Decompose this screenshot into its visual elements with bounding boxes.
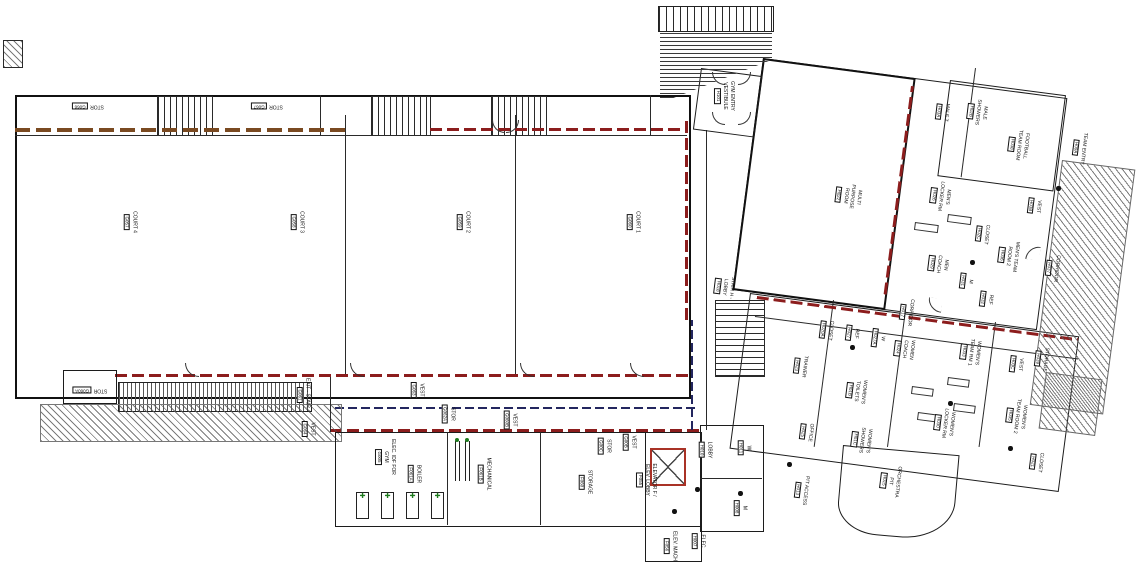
room-label-vest-g060b: VESTG060B	[503, 410, 516, 429]
room-number-stor-g062a: G062A	[441, 404, 448, 423]
room-label-office: OFFICEH025	[798, 422, 814, 442]
room-number-stor-g00c: G00C	[597, 438, 604, 455]
room-label-womens-toilets: WOMEN'STOILETSH01B	[845, 378, 868, 404]
room-label-boiler: BOILERF061A	[407, 465, 420, 483]
room-label-pit-access: PIT ACCESSH013	[793, 475, 810, 506]
room-number-boiler: F061A	[407, 465, 414, 483]
room-number-court2: G059	[456, 214, 463, 230]
room-number-toilet-m2: H031	[958, 272, 967, 288]
room-number-stor-sw: G060A	[73, 387, 92, 394]
room-label-toilet-m2: MH031	[958, 272, 973, 289]
room-label-court2: COURT 2G059	[456, 211, 469, 233]
room-label-male-t: MALE TH03A	[934, 102, 950, 121]
room-number-court3: G058	[290, 214, 297, 230]
room-label-elev-mach: ELEV. MACHF056	[663, 531, 676, 561]
room-label-elec-idf-gym: ELEC. IDF FORGYMG005	[375, 439, 395, 475]
room-label-mens-locker-rm: MEN'SLOCKER RMH026	[928, 180, 951, 212]
room-labels-layer: COURT 4G057COURT 3G058COURT 2G059COURT 1…	[0, 0, 1137, 577]
room-label-mechanical: MECHANICALF061B	[477, 458, 490, 491]
room-number-vest-g063: G063	[410, 382, 417, 398]
room-label-vest-h03c: VESTH03C	[1008, 355, 1023, 373]
room-label-court4: COURT 4G057	[123, 211, 136, 233]
room-number-vest-g064: G064	[301, 421, 308, 437]
room-number-toilet-w1: H011	[737, 440, 744, 455]
room-number-gym-entry-vestibule: H101	[714, 88, 721, 104]
room-label-womens-team-room-2: WOMEN'STEAM ROOM 2H035	[1004, 397, 1028, 434]
room-label-football-team-room: FOOTBALLTEAM ROOMH038	[1006, 128, 1030, 161]
room-label-toilet-m1: MH008	[733, 500, 746, 516]
room-label-womens-locker-rm: WOMEN'SLOCKER RMH030	[932, 407, 955, 439]
room-label-closet-h02c: CLOSETH02C	[974, 223, 990, 245]
room-number-vest-g060b: G060B	[503, 410, 510, 429]
room-label-corridor-east: CORRIDORH037	[1044, 254, 1061, 283]
room-label-vest-g00b: VESTG00B	[622, 434, 635, 451]
room-label-male-showers: MALESHOWERSH02B	[966, 98, 989, 126]
room-label-closet-h021: CLOSETH021	[1028, 451, 1044, 473]
room-number-lobby: H010	[698, 442, 705, 458]
room-number-toilet-w2: H027A	[870, 328, 879, 347]
room-label-ref-h032: REFH032	[978, 290, 993, 307]
room-number-orchestra-pit: H015	[879, 472, 888, 488]
room-label-trainer: TRAINERH023	[792, 354, 808, 377]
room-label-toilet-w1: WH011	[737, 440, 750, 455]
room-label-lobby: LOBBYH010	[698, 442, 711, 459]
room-label-team-entry: TEAM ENTRYH09A	[1070, 131, 1087, 165]
room-label-mens-team-room-2: MEN'S TEAMROOM 2H036	[996, 240, 1020, 273]
room-label-closet-h020a: CLOSETH020A	[818, 319, 834, 341]
room-label-vest-h03b: VESTH03B	[1026, 197, 1041, 215]
room-label-ref-h027: REFH027	[844, 324, 859, 341]
room-label-gym-entry-vestibule: GYM ENTRYVESTIBULEH101	[714, 81, 734, 111]
room-label-men-coach: MENCOACHH029	[927, 254, 949, 274]
room-label-corridor-mid: CORRIDORH017	[898, 298, 915, 327]
room-label-stor-g00c: STORG00C	[597, 438, 610, 455]
room-number-mechanical: F061B	[477, 465, 484, 483]
room-number-elec-idf-gym: G005	[375, 449, 382, 465]
room-label-stor-nw-1: STORG066	[72, 103, 104, 110]
room-label-vest-g063: VESTG063	[410, 382, 423, 398]
room-label-storage-f060: STORAGEF060	[578, 470, 591, 494]
room-label-stor-g062a: STORG062A	[441, 404, 454, 423]
room-number-ref-h032: H032	[978, 290, 987, 306]
room-number-vest-g00b: G00B	[622, 434, 629, 451]
room-number-ref-h027: H027	[844, 324, 853, 340]
room-number-stor-nw-1: G066	[72, 103, 88, 110]
room-label-elevator-f: ELEVATOR F /ELEV. LOBBYF055	[636, 463, 656, 496]
room-number-storage-f060: F060	[578, 474, 585, 489]
room-number-stor-nw-2: G067	[251, 103, 267, 110]
room-number-elec-h007: H007	[691, 533, 698, 549]
room-label-women-coach: WOMENCOACHH024	[893, 338, 915, 360]
room-number-exit-stair-4: G061	[296, 387, 303, 403]
room-label-court1: COURT 1G060	[626, 211, 639, 233]
room-label-womens-showers: WOMEN'SSHOWERSH01C	[850, 426, 873, 454]
room-label-multi-purpose-room: MULTIPURPOSEROOMH022	[833, 182, 862, 209]
room-number-toilet-m1: H008	[733, 500, 740, 516]
floor-plan-canvas: ✚ ✚ ✚ ✚ CO	[0, 0, 1137, 577]
room-number-court1: G060	[626, 214, 633, 230]
room-label-elec-h007: ELECH007	[691, 533, 704, 549]
room-label-exit-stair-4: EXIT - STAIR 4G061	[296, 378, 309, 412]
room-label-court3: COURT 3G058	[290, 211, 303, 233]
room-label-vest-g064: VESTG064	[301, 421, 314, 437]
room-number-court4: G057	[123, 214, 130, 230]
room-number-elevator-f: F055	[636, 472, 643, 487]
room-number-elev-mach: F056	[663, 538, 670, 553]
room-label-stor-sw: STORG060A	[73, 387, 108, 394]
room-label-toilet-w2: WH027A	[870, 328, 886, 348]
room-label-storage-h039: STORAGEH039	[1033, 346, 1049, 372]
room-label-stor-nw-2: STORG067	[251, 103, 283, 110]
room-label-orchestra-pit: ORCHESTRAPITH015	[878, 464, 902, 498]
room-label-stair-h-lobby: STAIR H -LOBBYH018	[713, 275, 736, 300]
room-label-womens-team-rm-1: WOMEN'STEAM RM 1H033	[958, 337, 981, 366]
